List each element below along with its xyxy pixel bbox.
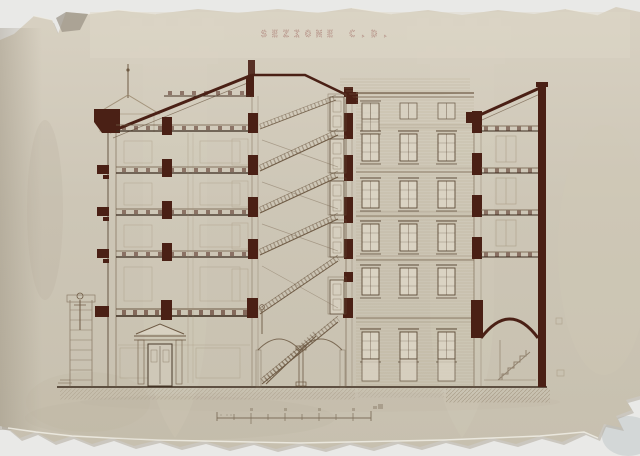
scanned-architectural-drawing: SEZIONE C.D. xyxy=(0,0,640,456)
courtyard-facade-elevation xyxy=(340,78,474,387)
sheet-title: SEZIONE C.D. xyxy=(261,29,393,40)
scan-canvas: SEZIONE C.D. xyxy=(0,0,640,456)
ground-hatch xyxy=(60,389,355,400)
facade-windows xyxy=(360,101,457,381)
